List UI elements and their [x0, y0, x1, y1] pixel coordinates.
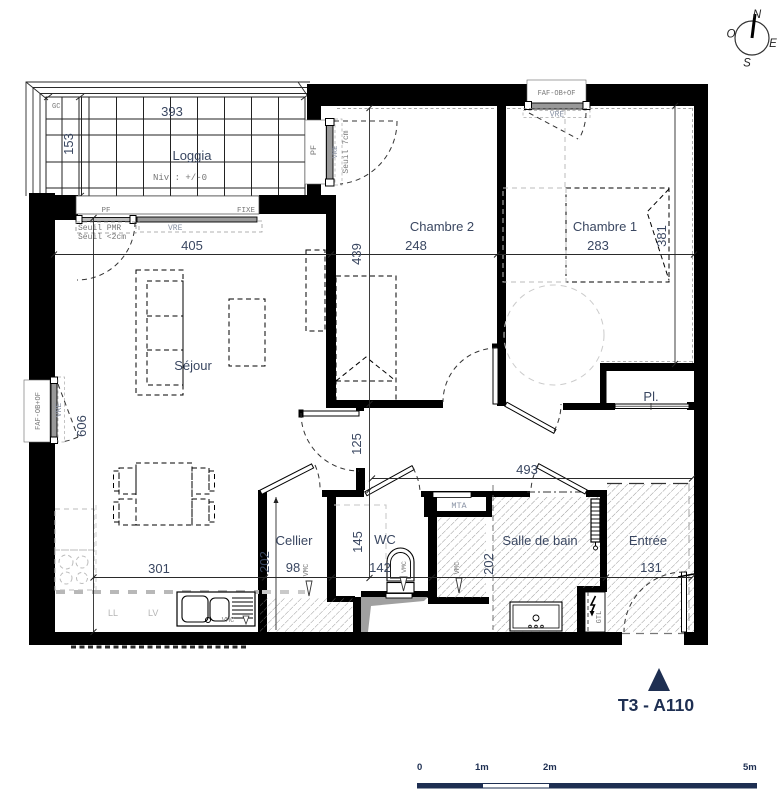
svg-text:Salle de bain: Salle de bain — [502, 533, 577, 548]
svg-text:202: 202 — [257, 551, 272, 573]
svg-text:PF: PF — [101, 207, 110, 215]
svg-text:Entrée: Entrée — [629, 533, 667, 548]
svg-text:606: 606 — [74, 415, 89, 437]
svg-text:145: 145 — [350, 531, 365, 553]
svg-text:Seuil 7cm: Seuil 7cm — [342, 130, 351, 173]
svg-text:PF: PF — [309, 145, 319, 155]
svg-text:Cellier: Cellier — [276, 533, 314, 548]
svg-text:Seuil PMR: Seuil PMR — [78, 224, 121, 233]
svg-text:VRE: VRE — [550, 111, 565, 120]
svg-text:283: 283 — [587, 238, 609, 253]
svg-text:MTA: MTA — [451, 501, 467, 511]
svg-text:5m: 5m — [743, 762, 757, 773]
svg-text:98: 98 — [286, 560, 300, 575]
svg-text:Niv : +/-0: Niv : +/-0 — [153, 173, 207, 183]
svg-text:VMC: VMC — [222, 617, 235, 625]
svg-text:381: 381 — [654, 225, 669, 247]
svg-text:VRE: VRE — [55, 403, 64, 418]
svg-text:VRE: VRE — [332, 146, 340, 159]
svg-text:T3 - A110: T3 - A110 — [618, 695, 694, 715]
svg-text:LV: LV — [148, 608, 158, 618]
svg-text:142: 142 — [369, 560, 391, 575]
svg-text:2m: 2m — [543, 762, 557, 773]
svg-text:VMC: VMC — [401, 561, 408, 573]
svg-text:393: 393 — [161, 104, 183, 119]
svg-text:0: 0 — [417, 762, 422, 773]
svg-text:VRE: VRE — [168, 224, 183, 233]
svg-text:WC: WC — [374, 532, 396, 547]
svg-text:Pl.: Pl. — [643, 389, 658, 404]
svg-text:E: E — [769, 38, 777, 50]
svg-text:405: 405 — [181, 238, 203, 253]
svg-text:493: 493 — [516, 462, 538, 477]
svg-text:131: 131 — [640, 560, 662, 575]
svg-text:1m: 1m — [475, 762, 489, 773]
svg-text:GTL: GTL — [596, 611, 604, 624]
svg-text:Seuil <2cm: Seuil <2cm — [78, 233, 126, 242]
svg-text:FAF-OB+OF: FAF-OB+OF — [538, 90, 576, 98]
svg-text:S: S — [743, 58, 751, 70]
svg-text:FIXE: FIXE — [237, 207, 256, 215]
svg-text:202: 202 — [481, 553, 496, 575]
svg-text:Loggia: Loggia — [172, 148, 212, 163]
svg-text:301: 301 — [148, 561, 170, 576]
svg-text:GC: GC — [52, 103, 60, 111]
svg-text:153: 153 — [61, 133, 76, 155]
svg-text:439: 439 — [349, 243, 364, 265]
svg-text:VMC: VMC — [303, 564, 311, 577]
svg-text:VMC: VMC — [454, 562, 462, 575]
svg-text:N: N — [753, 9, 762, 21]
svg-text:125: 125 — [349, 433, 364, 455]
svg-text:O: O — [727, 29, 736, 41]
svg-text:FAF-OB+OF: FAF-OB+OF — [35, 392, 43, 430]
svg-text:Chambre 1: Chambre 1 — [573, 219, 637, 234]
svg-text:Séjour: Séjour — [174, 358, 212, 373]
svg-text:Chambre 2: Chambre 2 — [410, 219, 474, 234]
svg-text:LL: LL — [108, 608, 118, 618]
svg-text:248: 248 — [405, 238, 427, 253]
